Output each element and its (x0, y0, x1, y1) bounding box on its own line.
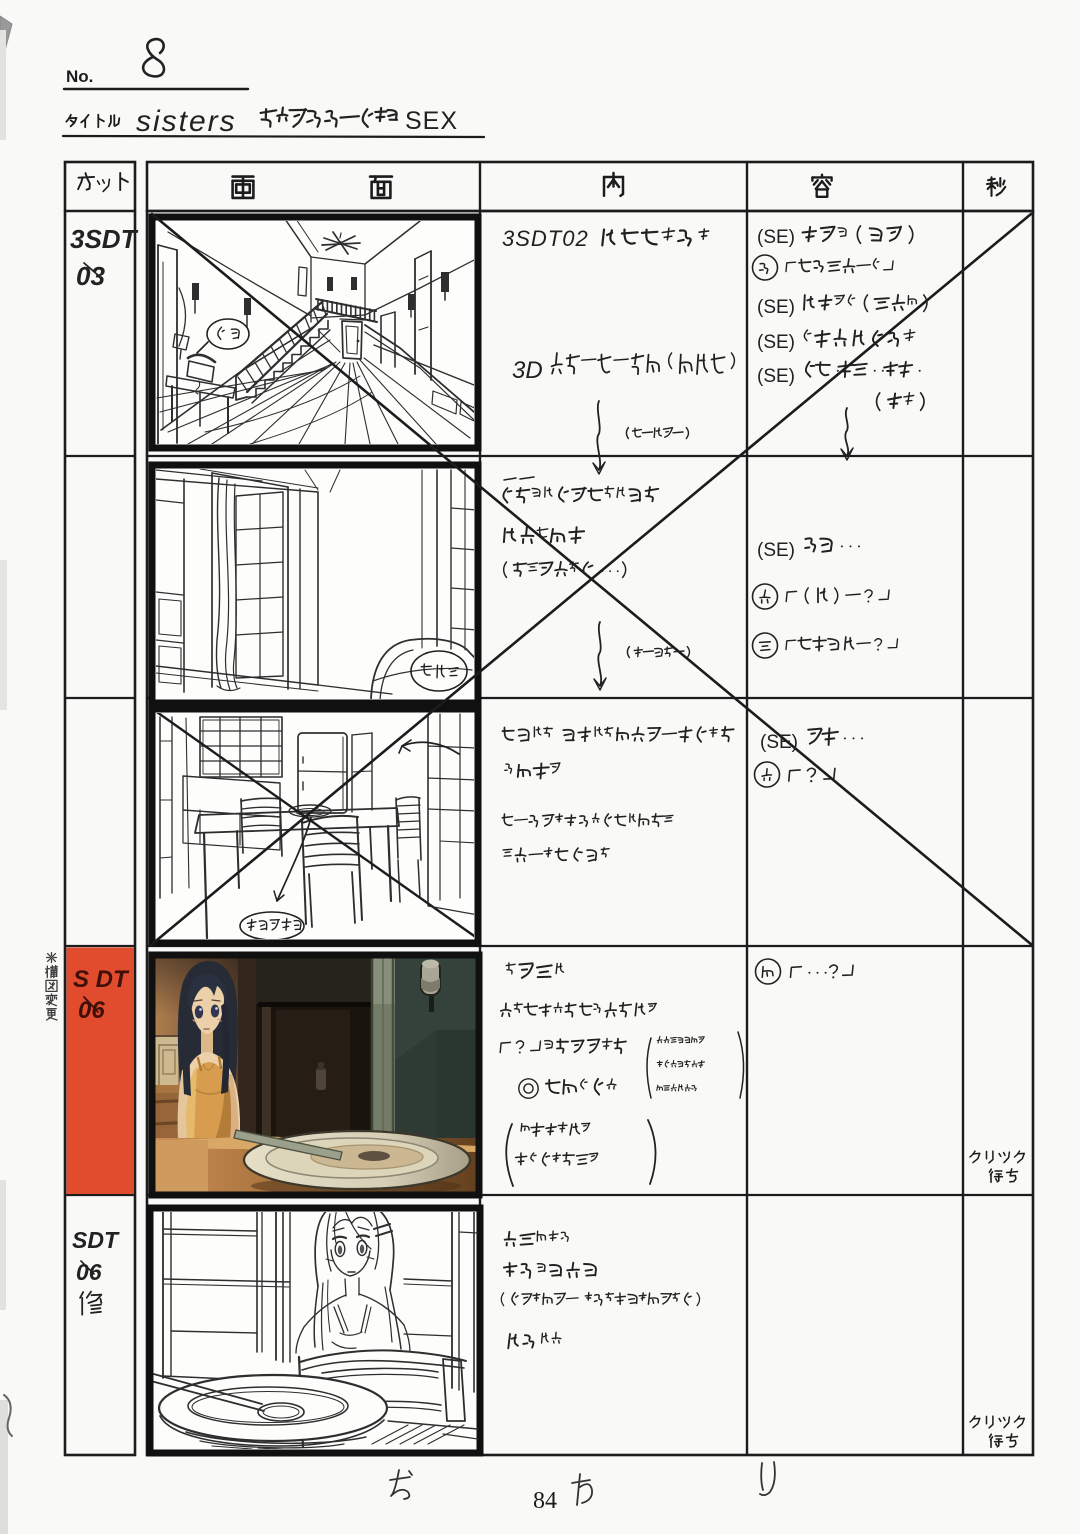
svg-text:No.: No. (66, 67, 93, 86)
svg-text:SDT: SDT (72, 1227, 120, 1253)
svg-text:3SDT: 3SDT (70, 224, 139, 254)
svg-text:3SDT02: 3SDT02 (502, 226, 589, 251)
svg-text:S DT: S DT (73, 966, 130, 993)
svg-text:(SE): (SE) (757, 540, 795, 561)
svg-text:(SE): (SE) (757, 297, 795, 318)
svg-text:06: 06 (78, 997, 105, 1024)
svg-text:3D: 3D (512, 357, 543, 384)
svg-text:84: 84 (533, 1488, 557, 1514)
svg-text:03: 03 (76, 261, 105, 291)
svg-text:(SE): (SE) (757, 227, 795, 248)
svg-text:SEX: SEX (405, 107, 458, 135)
svg-text:06: 06 (76, 1259, 102, 1285)
svg-text:(SE): (SE) (757, 332, 795, 353)
svg-text:sisters: sisters (136, 105, 237, 138)
svg-text:(SE): (SE) (760, 732, 798, 753)
svg-text:(SE): (SE) (757, 366, 795, 387)
